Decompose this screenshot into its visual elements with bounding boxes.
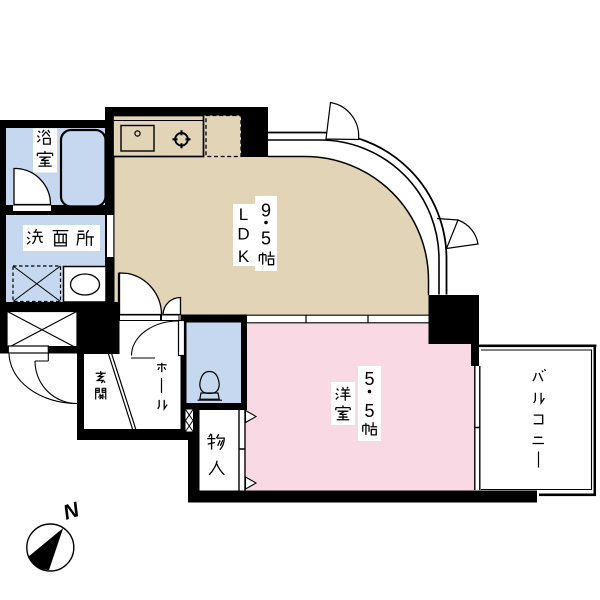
svg-text:5: 5 bbox=[364, 369, 374, 389]
svg-text:K: K bbox=[238, 247, 250, 266]
svg-text:5: 5 bbox=[261, 229, 271, 249]
svg-text:L: L bbox=[239, 205, 248, 224]
svg-text:5: 5 bbox=[364, 401, 374, 421]
svg-text:9: 9 bbox=[261, 201, 271, 221]
svg-text:D: D bbox=[237, 225, 249, 244]
